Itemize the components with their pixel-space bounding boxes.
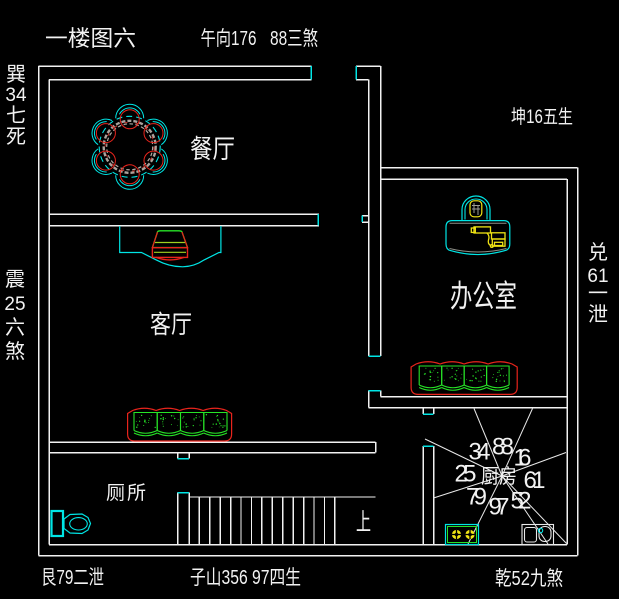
- svg-text:一: 一: [588, 283, 608, 305]
- svg-text:艮79二泄: 艮79二泄: [41, 566, 104, 589]
- svg-text:上: 上: [356, 509, 371, 536]
- svg-text:厨房: 厨房: [481, 465, 517, 488]
- svg-text:兑: 兑: [588, 241, 608, 264]
- svg-text:88: 88: [492, 434, 514, 461]
- svg-text:午向176: 午向176: [201, 27, 257, 50]
- svg-text:乾52九煞: 乾52九煞: [495, 567, 563, 590]
- svg-text:34: 34: [5, 85, 27, 106]
- svg-text:一楼图六: 一楼图六: [45, 26, 136, 51]
- svg-text:坤16五生: 坤16五生: [511, 106, 573, 128]
- svg-text:厕所: 厕所: [106, 482, 146, 504]
- svg-text:25: 25: [4, 294, 25, 315]
- svg-text:52: 52: [511, 488, 532, 515]
- svg-text:死: 死: [6, 126, 26, 148]
- svg-text:88三煞: 88三煞: [270, 27, 318, 50]
- svg-text:六: 六: [5, 316, 25, 339]
- svg-text:办公室: 办公室: [450, 279, 517, 314]
- svg-text:震: 震: [5, 269, 25, 291]
- svg-text:七: 七: [6, 104, 26, 127]
- svg-text:泄: 泄: [588, 303, 608, 326]
- svg-text:客厅: 客厅: [150, 311, 192, 339]
- svg-text:97: 97: [489, 494, 510, 521]
- svg-text:餐厅: 餐厅: [190, 134, 235, 164]
- svg-text:煞: 煞: [5, 340, 25, 363]
- svg-text:子山356 97四生: 子山356 97四生: [190, 566, 301, 589]
- svg-text:巽: 巽: [6, 64, 26, 86]
